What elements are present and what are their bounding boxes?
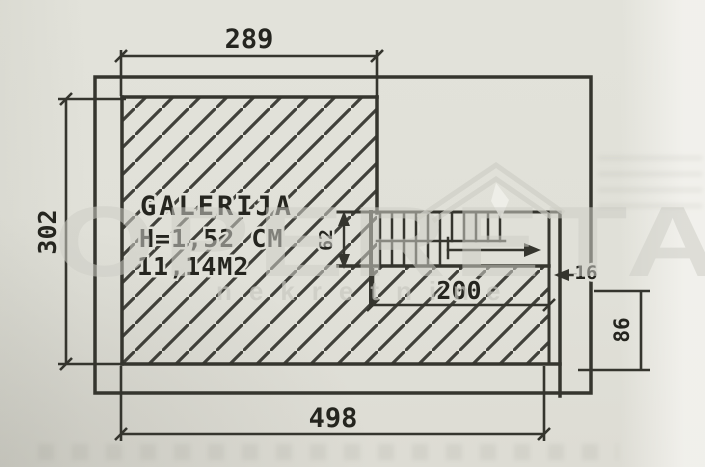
dim-label-16: 16 [575, 262, 598, 284]
dim-label-302: 302 [33, 209, 62, 254]
dim-label-289: 289 [225, 24, 274, 55]
bleedthrough-smudge [38, 444, 618, 460]
floor-plan-drawing: 289 302 498 200 62 [0, 0, 705, 467]
floor-plan-scan: 289 302 498 200 62 [0, 0, 705, 467]
dimension-right-height: 86 [578, 291, 650, 370]
room-area-label: 11,14M2 [137, 252, 249, 281]
dim-label-498: 498 [309, 403, 358, 434]
dimension-top-width: 289 [115, 24, 383, 96]
room-name-label: GALERIJA [140, 191, 294, 222]
bleedthrough-smudge [598, 146, 702, 208]
dimension-bottom-width: 498 [115, 366, 550, 441]
dimension-left-height: 302 [33, 93, 126, 370]
dim-label-62: 62 [316, 229, 337, 251]
dim-label-86: 86 [610, 317, 634, 342]
room-height-label: H=1,52 CM [139, 224, 283, 253]
dim-label-200: 200 [436, 276, 481, 305]
